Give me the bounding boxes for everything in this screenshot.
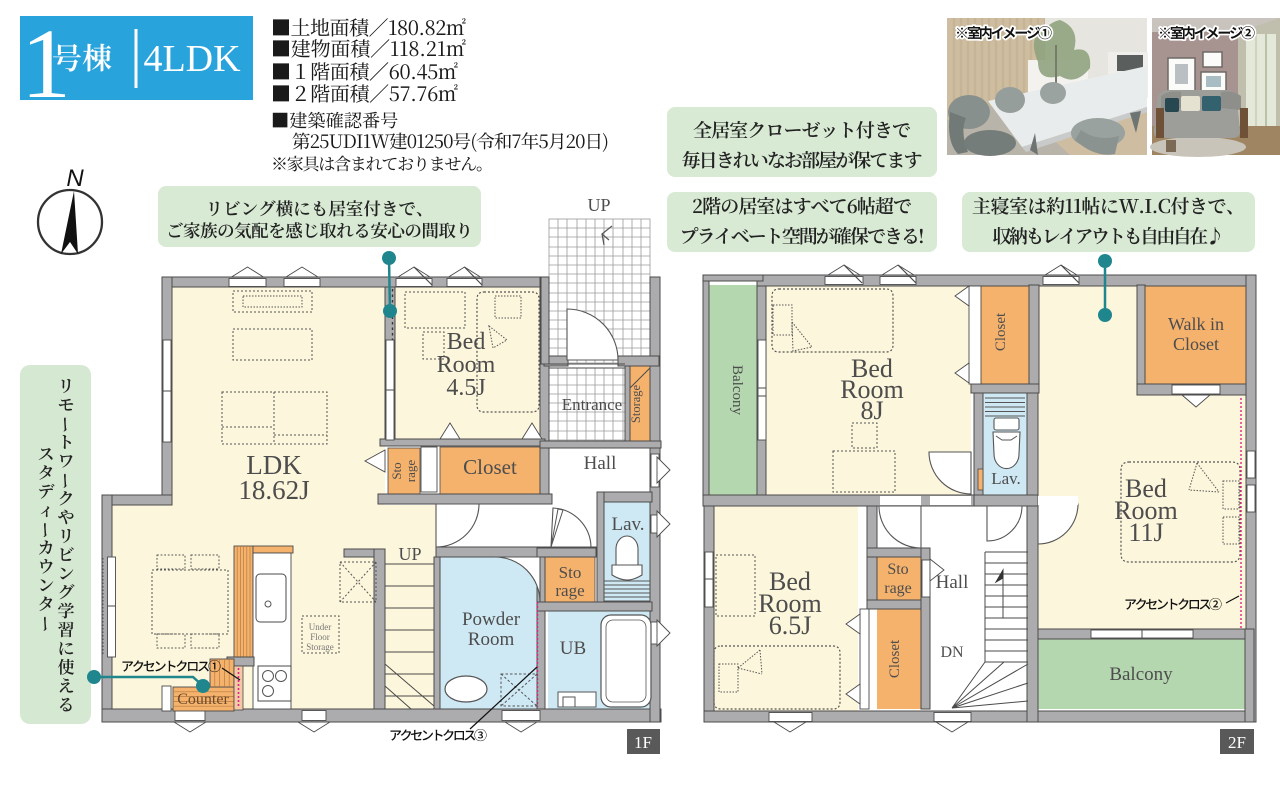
svg-text:Sto: Sto [559,563,582,582]
svg-text:Closet: Closet [887,639,903,678]
svg-text:Room: Room [468,629,515,650]
svg-text:4LDK: 4LDK [143,38,241,80]
svg-text:Counter: Counter [177,691,229,708]
svg-text:Powder: Powder [462,609,521,630]
svg-text:Closet: Closet [993,312,1009,351]
svg-text:18.62J: 18.62J [238,475,309,505]
svg-text:Floor: Floor [310,632,330,642]
svg-text:rage: rage [555,581,584,600]
svg-text:UP: UP [398,544,421,564]
svg-text:Closet: Closet [463,455,517,479]
svg-text:UP: UP [587,195,610,215]
svg-text:Closet: Closet [1173,334,1219,354]
svg-text:2F: 2F [1228,733,1246,752]
svg-text:4.5J: 4.5J [446,375,485,401]
svg-text:DN: DN [940,644,964,661]
svg-text:Sto: Sto [887,561,908,578]
svg-text:Hall: Hall [584,453,617,474]
svg-text:Lav.: Lav. [991,469,1021,488]
svg-text:N: N [66,165,84,192]
svg-text:Lav.: Lav. [611,514,644,535]
svg-text:rage: rage [884,580,912,597]
svg-text:Storage: Storage [629,384,643,423]
svg-text:Under: Under [309,622,332,632]
svg-text:rage: rage [403,460,418,483]
svg-text:11J: 11J [1128,518,1163,547]
svg-text:Balcony: Balcony [1109,664,1173,685]
svg-text:8J: 8J [860,396,883,425]
svg-text:1F: 1F [634,733,652,752]
svg-text:Hall: Hall [936,572,969,593]
svg-text:Balcony: Balcony [729,365,745,415]
svg-text:6.5J: 6.5J [769,611,812,640]
svg-text:Walk in: Walk in [1168,314,1224,334]
svg-text:Sto: Sto [389,462,404,479]
svg-text:Entrance: Entrance [562,395,622,414]
svg-text:1: 1 [21,8,71,119]
svg-text:Storage: Storage [306,642,334,652]
svg-text:UB: UB [560,638,586,659]
